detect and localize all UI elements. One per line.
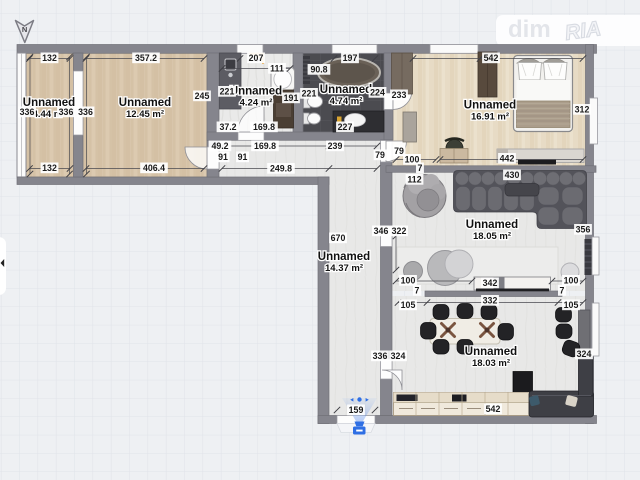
svg-text:336: 336 [20,107,35,117]
svg-text:336: 336 [78,107,93,117]
svg-text:670: 670 [331,233,346,243]
svg-text:18.03 m²: 18.03 m² [472,358,510,369]
svg-text:239: 239 [328,141,343,151]
svg-text:132: 132 [42,53,57,63]
svg-text:169.8: 169.8 [253,122,275,132]
svg-text:542: 542 [484,53,499,63]
svg-text:336: 336 [59,107,74,117]
svg-text:79: 79 [375,150,385,160]
svg-text:406.4: 406.4 [143,163,165,173]
svg-text:18.05 m²: 18.05 m² [473,231,511,242]
svg-text:324: 324 [577,349,592,359]
svg-text:12.45 m²: 12.45 m² [126,109,164,120]
svg-text:4.24 m²: 4.24 m² [240,98,273,109]
svg-text:Unnamed: Unnamed [119,97,171,109]
svg-text:227: 227 [338,122,353,132]
svg-text:356: 356 [576,225,591,235]
svg-text:224: 224 [370,88,385,98]
svg-text:312: 312 [575,105,590,115]
svg-text:336: 336 [373,351,388,361]
svg-text:332: 332 [483,296,498,306]
svg-text:49.2: 49.2 [211,141,228,151]
svg-text:16.91 m²: 16.91 m² [471,112,509,123]
svg-text:324: 324 [391,351,406,361]
svg-text:105: 105 [401,300,416,310]
svg-text:79: 79 [394,146,404,156]
svg-text:14.37 m²: 14.37 m² [325,263,363,274]
svg-text:90.8: 90.8 [310,65,327,75]
svg-text:346: 346 [374,226,389,236]
svg-text:221: 221 [220,87,235,97]
svg-text:442: 442 [500,154,515,164]
svg-text:132: 132 [42,163,57,173]
svg-text:357.2: 357.2 [135,53,157,63]
svg-text:91: 91 [218,152,228,162]
svg-text:7: 7 [560,286,565,296]
svg-text:207: 207 [249,53,264,63]
svg-text:342: 342 [483,278,498,288]
svg-text:37.2: 37.2 [219,122,236,132]
svg-text:159: 159 [349,405,364,415]
svg-text:221: 221 [302,89,317,99]
svg-text:191: 191 [284,93,299,103]
svg-text:4.74 m²: 4.74 m² [330,96,363,107]
svg-text:N: N [22,25,27,34]
svg-text:91: 91 [238,152,248,162]
svg-text:Unnamed: Unnamed [466,219,518,231]
svg-text:233: 233 [392,90,407,100]
svg-text:Unnamed: Unnamed [464,100,516,112]
svg-text:Unnamed: Unnamed [320,84,372,96]
svg-text:430: 430 [505,170,520,180]
svg-text:542: 542 [486,404,501,414]
svg-text:249.8: 249.8 [270,164,292,174]
svg-text:105: 105 [564,300,579,310]
svg-text:322: 322 [392,226,407,236]
svg-text:dim: dim [508,16,551,43]
svg-text:7: 7 [418,163,423,173]
svg-text:Unnamed: Unnamed [318,251,370,263]
svg-text:Unnamed: Unnamed [465,346,517,358]
svg-text:197: 197 [343,53,358,63]
svg-text:111: 111 [270,64,284,74]
svg-text:Unnamed: Unnamed [230,86,282,98]
svg-text:169.8: 169.8 [254,141,276,151]
svg-text:245: 245 [195,91,210,101]
svg-text:100: 100 [564,276,579,286]
svg-text:100: 100 [401,276,416,286]
svg-text:7: 7 [415,286,420,296]
svg-text:112: 112 [407,175,421,185]
